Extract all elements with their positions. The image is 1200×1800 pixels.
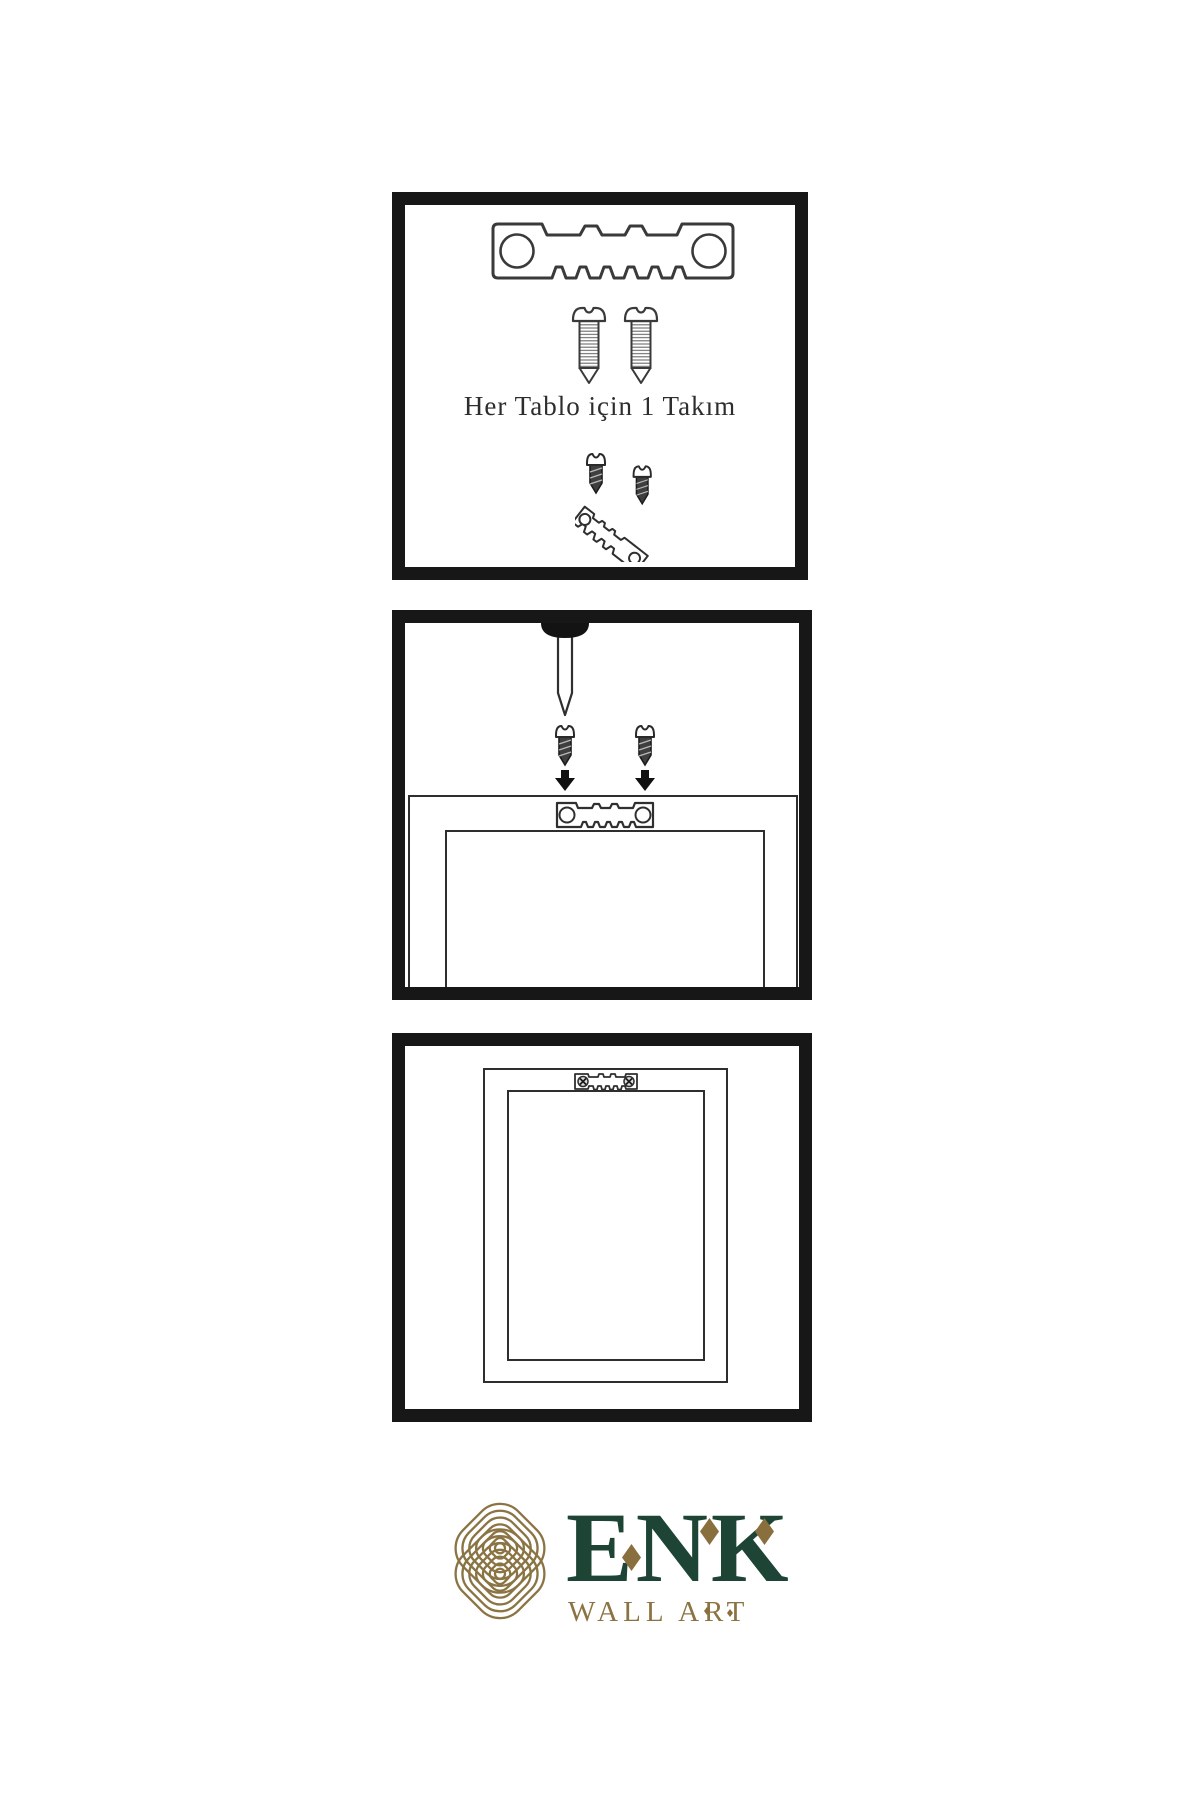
- screw-icon: [571, 304, 607, 386]
- sawtooth-hanger-icon: [490, 221, 736, 281]
- step-3-panel: [392, 1033, 812, 1422]
- canvas-back-outline: [445, 830, 765, 987]
- down-arrow-icon: [555, 770, 575, 791]
- sawtooth-hanger-icon: [553, 801, 657, 829]
- brand-name: ENK: [566, 1498, 792, 1598]
- dark-screw-down-arrow-icon: [552, 722, 578, 792]
- mounted-sawtooth-hanger-icon: [572, 1072, 640, 1092]
- down-arrow-icon: [635, 770, 655, 791]
- wall-nail-icon: [539, 623, 591, 720]
- step-2-panel: [392, 610, 812, 1000]
- screw-icon: [623, 304, 659, 386]
- brand-subtitle: WALL ART: [568, 1598, 749, 1627]
- frame-inner-outline: [507, 1090, 705, 1361]
- dark-screw-down-arrow-icon: [632, 722, 658, 792]
- step-1-caption: Her Tablo için 1 Takım: [405, 391, 795, 422]
- angled-sawtooth-hanger-icon: [575, 450, 685, 562]
- step-1-panel: Her Tablo için 1 Takım: [392, 192, 808, 580]
- enk-knot-logo: [436, 1492, 564, 1632]
- instruction-sheet: Her Tablo için 1 Takım: [0, 0, 1200, 1800]
